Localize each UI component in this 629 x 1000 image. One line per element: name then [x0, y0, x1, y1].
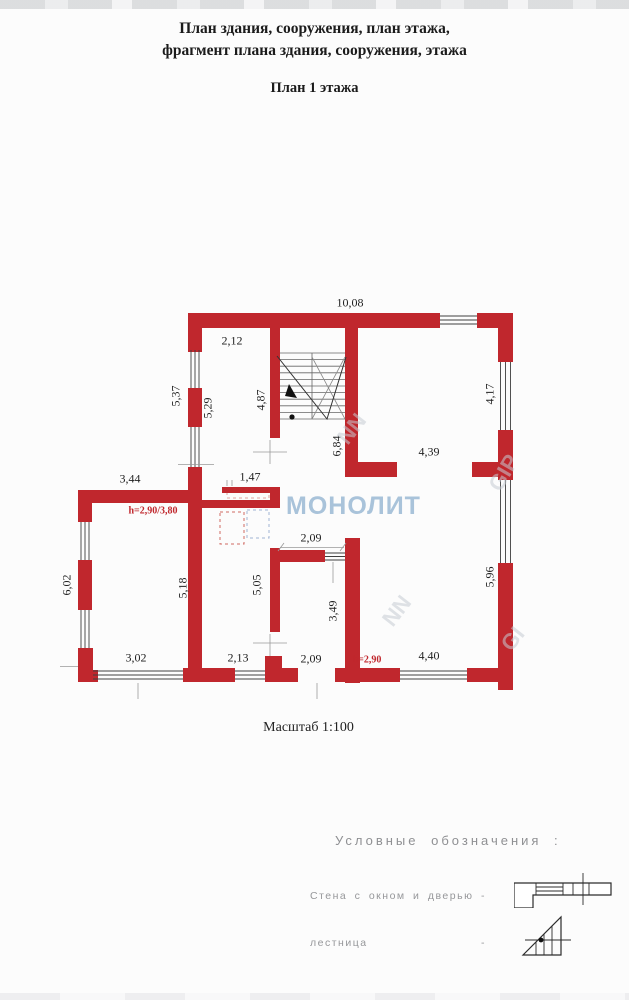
legend-item-stair-label: лестница	[310, 937, 368, 949]
staircase-icon	[521, 915, 573, 959]
document-page: План здания, сооружения, план этажа, фра…	[0, 0, 629, 1000]
legend-item-stair: лестница -	[310, 937, 486, 949]
legend-title: Условные обозначения :	[335, 833, 561, 848]
legend-item-wall: Стена с окном и дверью -	[310, 890, 486, 902]
legend-item-stair-dash: -	[481, 937, 486, 949]
wall-with-window-and-door-icon	[514, 872, 614, 908]
legend-item-wall-label: Стена с окном и дверью	[310, 890, 473, 902]
legend-item-wall-dash: -	[481, 890, 486, 902]
legend: Условные обозначения : Стена с окном и д…	[0, 0, 629, 1000]
